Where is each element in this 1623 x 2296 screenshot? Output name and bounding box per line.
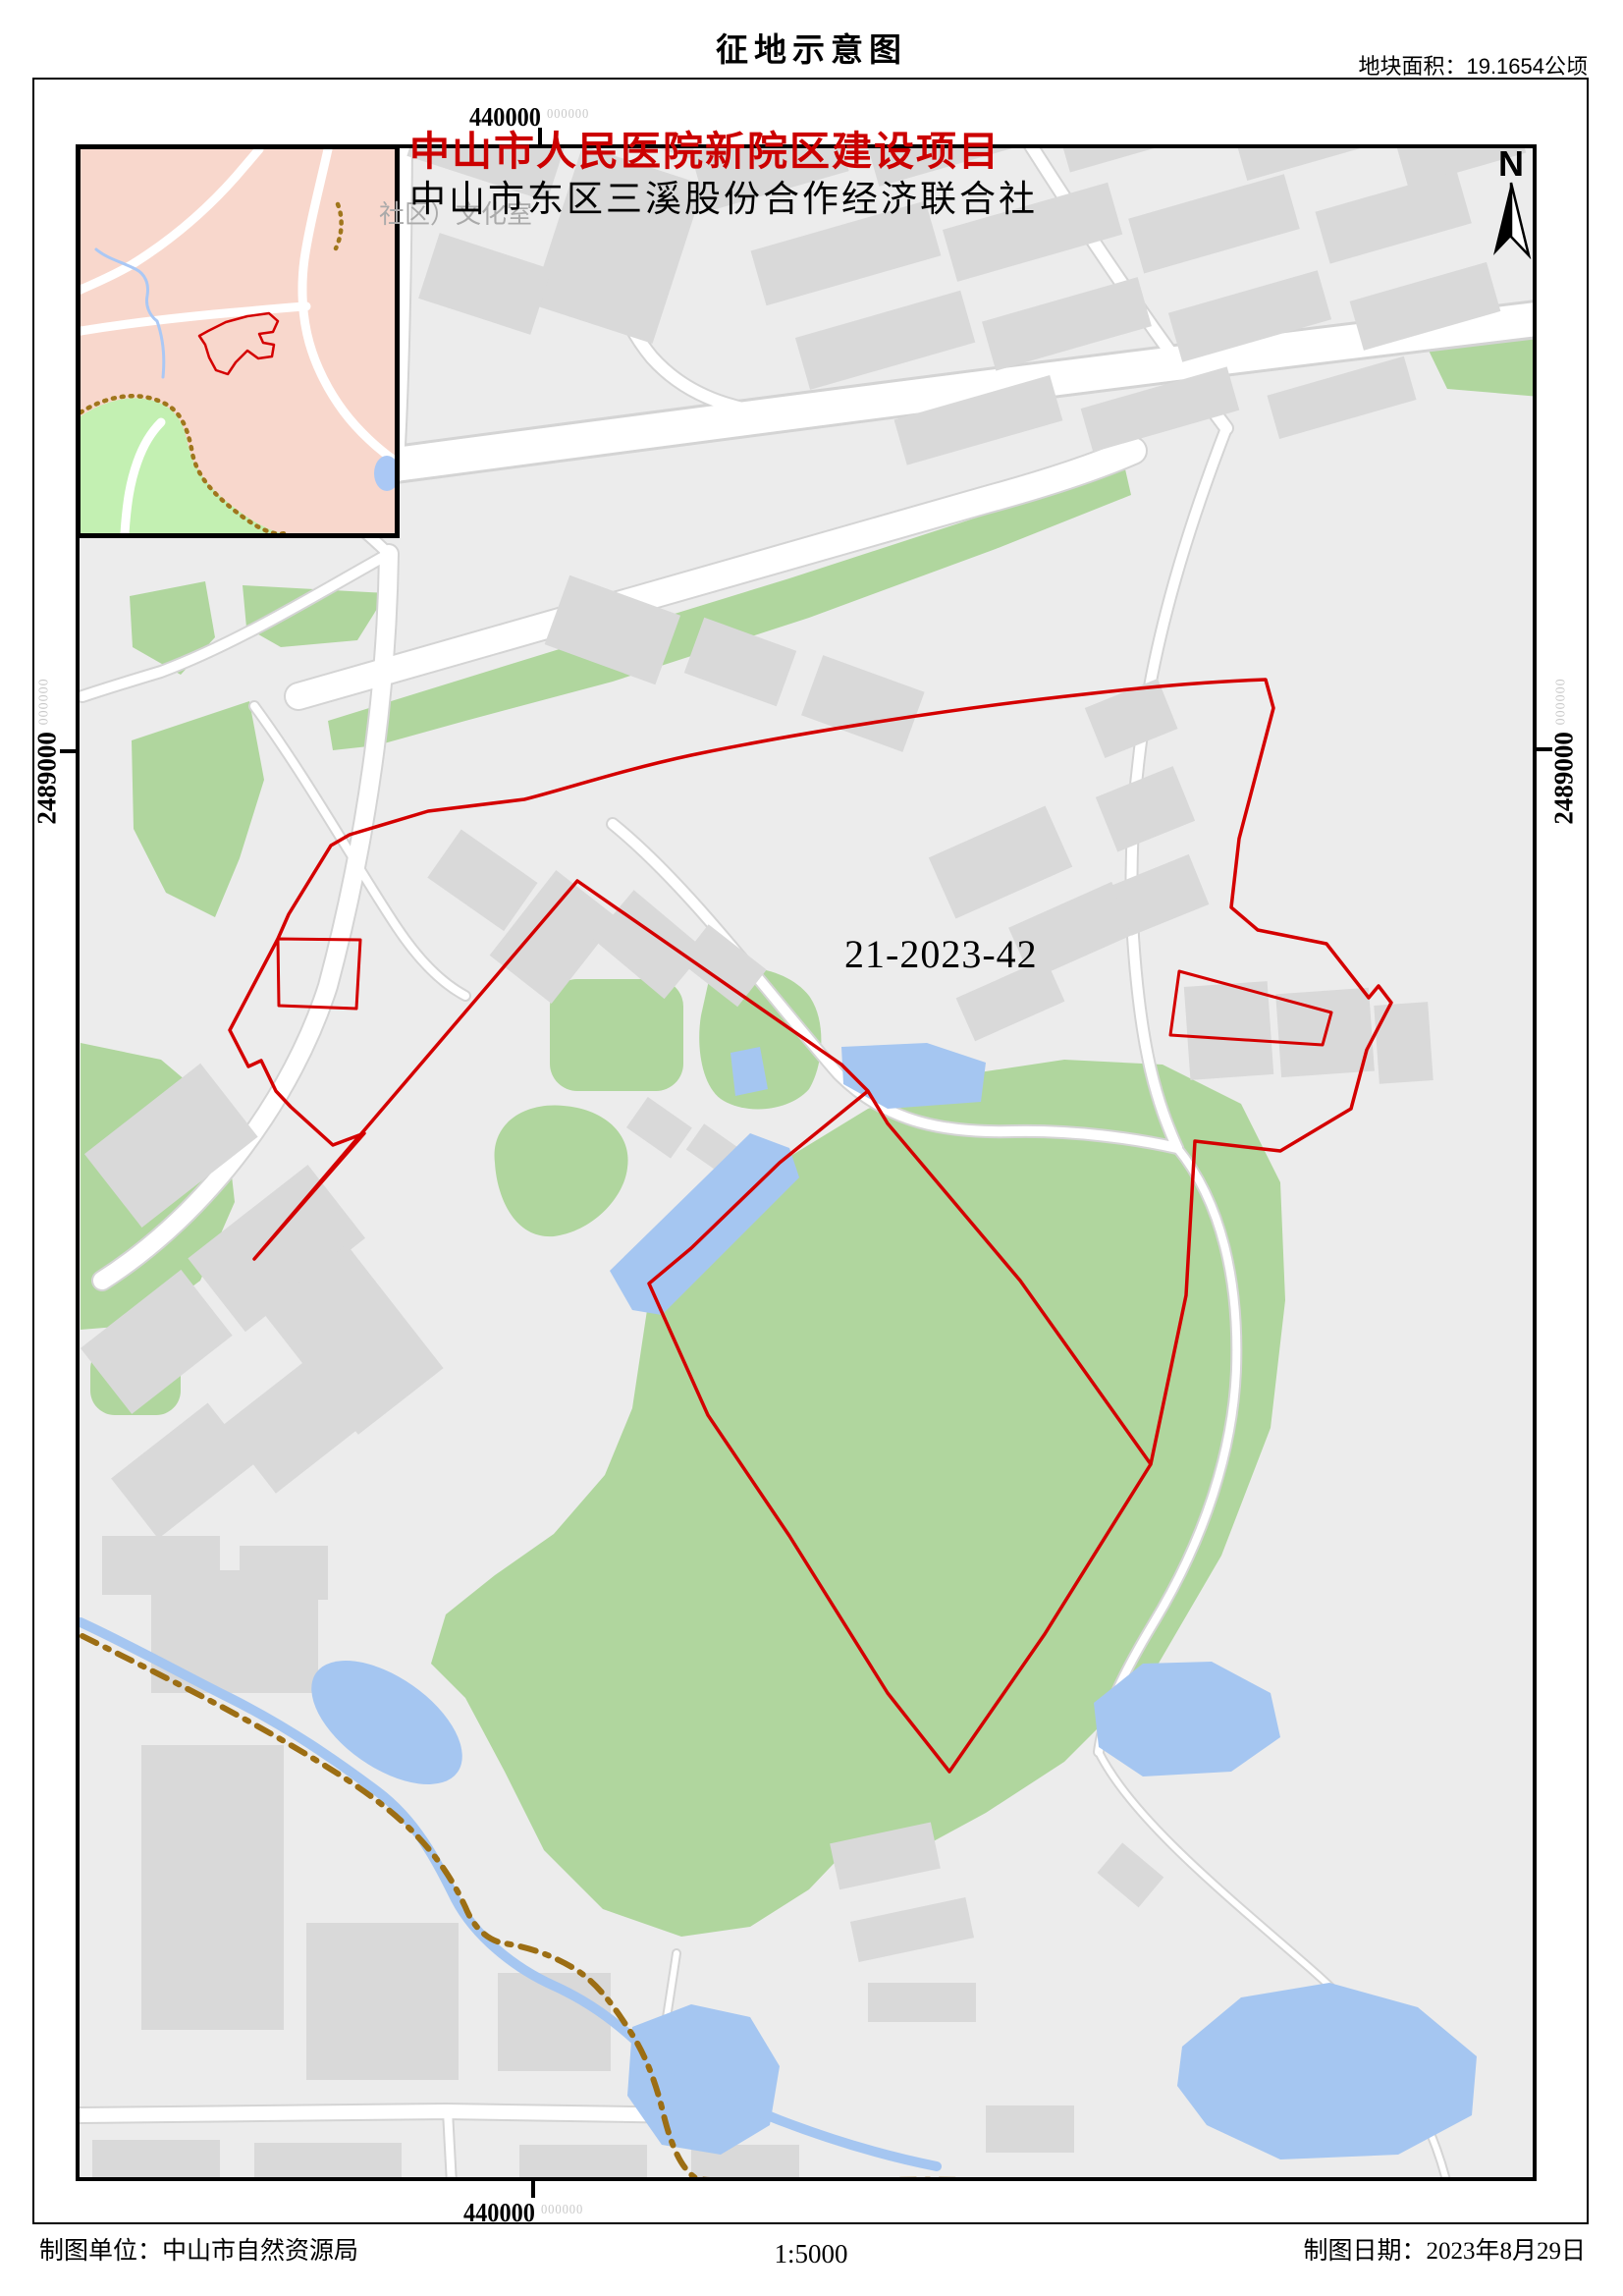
coord-left-sup: 000000 (37, 678, 52, 725)
inset-locator-map (76, 144, 400, 538)
coord-bottom-main: 440000 (463, 2198, 535, 2227)
area-label: 地块面积：19.1654公顷 (1358, 49, 1588, 81)
footer-scale: 1:5000 (774, 2239, 847, 2269)
coord-right-sup: 000000 (1554, 678, 1569, 725)
org-label: 中山市东区三溪股份合作经济联合社 (409, 169, 1038, 222)
parcel-id-label: 21-2023-42 (844, 931, 1038, 977)
coord-top-main: 440000 (469, 102, 541, 132)
grid-tick-bottom (531, 2181, 535, 2198)
north-arrow-label: N (1487, 147, 1536, 181)
coord-label-left: 2489000 000000 (32, 678, 63, 824)
coord-label-right: 2489000 000000 (1549, 678, 1580, 824)
footer-date: 制图日期：2023年8月29日 (1303, 2231, 1586, 2267)
coord-bottom-sup: 000000 (541, 2203, 583, 2217)
coord-top-sup: 000000 (547, 107, 589, 122)
footer-agency: 制图单位：中山市自然资源局 (39, 2231, 358, 2267)
coord-label-top: 440000 000000 (469, 102, 589, 133)
north-arrow-icon (1489, 181, 1533, 259)
coord-label-bottom: 440000 000000 (463, 2198, 583, 2228)
north-arrow: N (1487, 147, 1536, 263)
coord-left-main: 2489000 (32, 732, 62, 825)
coord-right-main: 2489000 (1549, 732, 1579, 825)
